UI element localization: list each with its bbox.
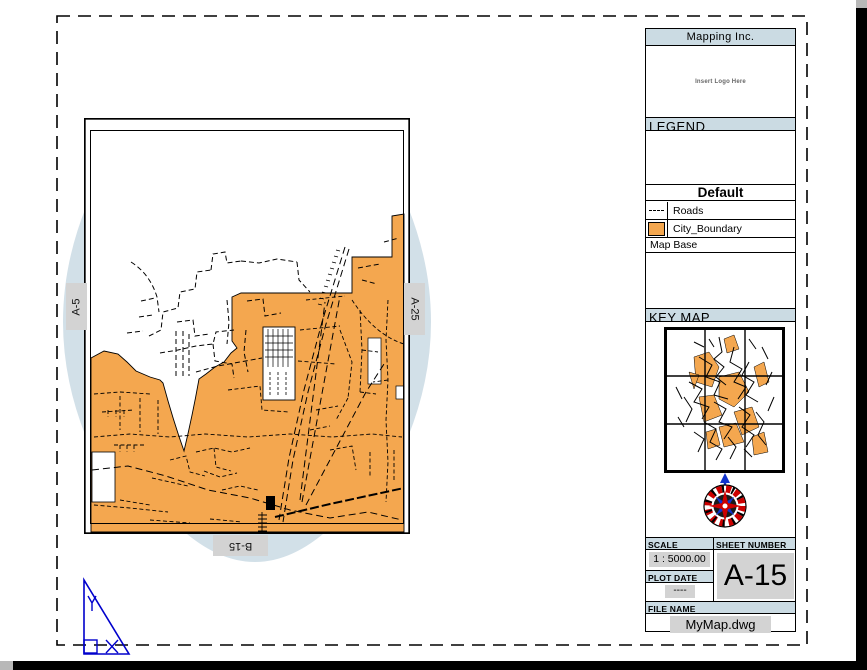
legend-row-city-boundary: City_Boundary xyxy=(646,219,795,237)
legend-roads-label: Roads xyxy=(668,205,703,217)
file-name-value: MyMap.dwg xyxy=(670,616,771,633)
legend-header: LEGEND xyxy=(646,117,795,131)
plot-date-value: ---- xyxy=(665,585,695,598)
legend-table-title: Default xyxy=(646,184,795,201)
city-boundary-symbol-cell xyxy=(646,220,668,237)
built-up-block xyxy=(263,327,295,400)
key-map-header: KEY MAP xyxy=(646,308,795,322)
white-parcel-right xyxy=(368,338,381,384)
file-name-label: FILE NAME xyxy=(646,601,795,614)
logo-placeholder-area: Insert Logo Here xyxy=(646,47,795,117)
dashed-line-symbol xyxy=(649,210,664,211)
plot-date-label: PLOT DATE xyxy=(646,570,714,583)
white-parcel-left xyxy=(92,452,115,502)
scale-sheet-header-row: SCALE SHEET NUMBER xyxy=(646,537,795,550)
adjacent-sheet-label-left: A-5 xyxy=(66,283,87,330)
background-corner-top-right xyxy=(856,0,867,8)
map-viewport[interactable] xyxy=(84,118,410,534)
key-map-thumbnail[interactable] xyxy=(664,327,785,473)
scale-label: SCALE xyxy=(646,538,714,549)
ucs-icon: Y X xyxy=(72,576,136,664)
background-corner-bottom-left xyxy=(0,661,13,670)
adjacent-sheet-bottom-text: B-15 xyxy=(229,540,252,552)
title-block: Mapping Inc. Insert Logo Here LEGEND Def… xyxy=(645,28,796,632)
legend-city-boundary-label: City_Boundary xyxy=(668,223,742,235)
legend-row-roads: Roads xyxy=(646,202,795,219)
adjacent-sheet-left-text: A-5 xyxy=(71,298,83,315)
layout-canvas: { "title_block": { "company": "Mapping I… xyxy=(0,0,867,670)
compass-rose-icon xyxy=(703,484,747,528)
orange-swatch xyxy=(648,222,665,236)
adjacent-sheet-label-right: A-25 xyxy=(404,283,425,335)
page-shadow-right xyxy=(856,8,867,670)
logo-placeholder-text: Insert Logo Here xyxy=(646,79,795,85)
company-name: Mapping Inc. xyxy=(646,29,795,46)
station-block xyxy=(266,496,275,510)
adjacent-sheet-right-text: A-25 xyxy=(409,297,421,320)
page-shadow-bottom xyxy=(13,661,867,670)
roads-symbol-cell xyxy=(646,202,668,219)
sheet-number-value: A-15 xyxy=(717,553,794,599)
sheet-number-label: SHEET NUMBER xyxy=(714,538,795,549)
scale-value: 1 : 5000.00 xyxy=(649,552,710,567)
adjacent-sheet-label-bottom: B-15 xyxy=(213,535,268,556)
white-notch-right xyxy=(396,386,404,399)
legend-map-base-label: Map Base xyxy=(646,237,795,253)
